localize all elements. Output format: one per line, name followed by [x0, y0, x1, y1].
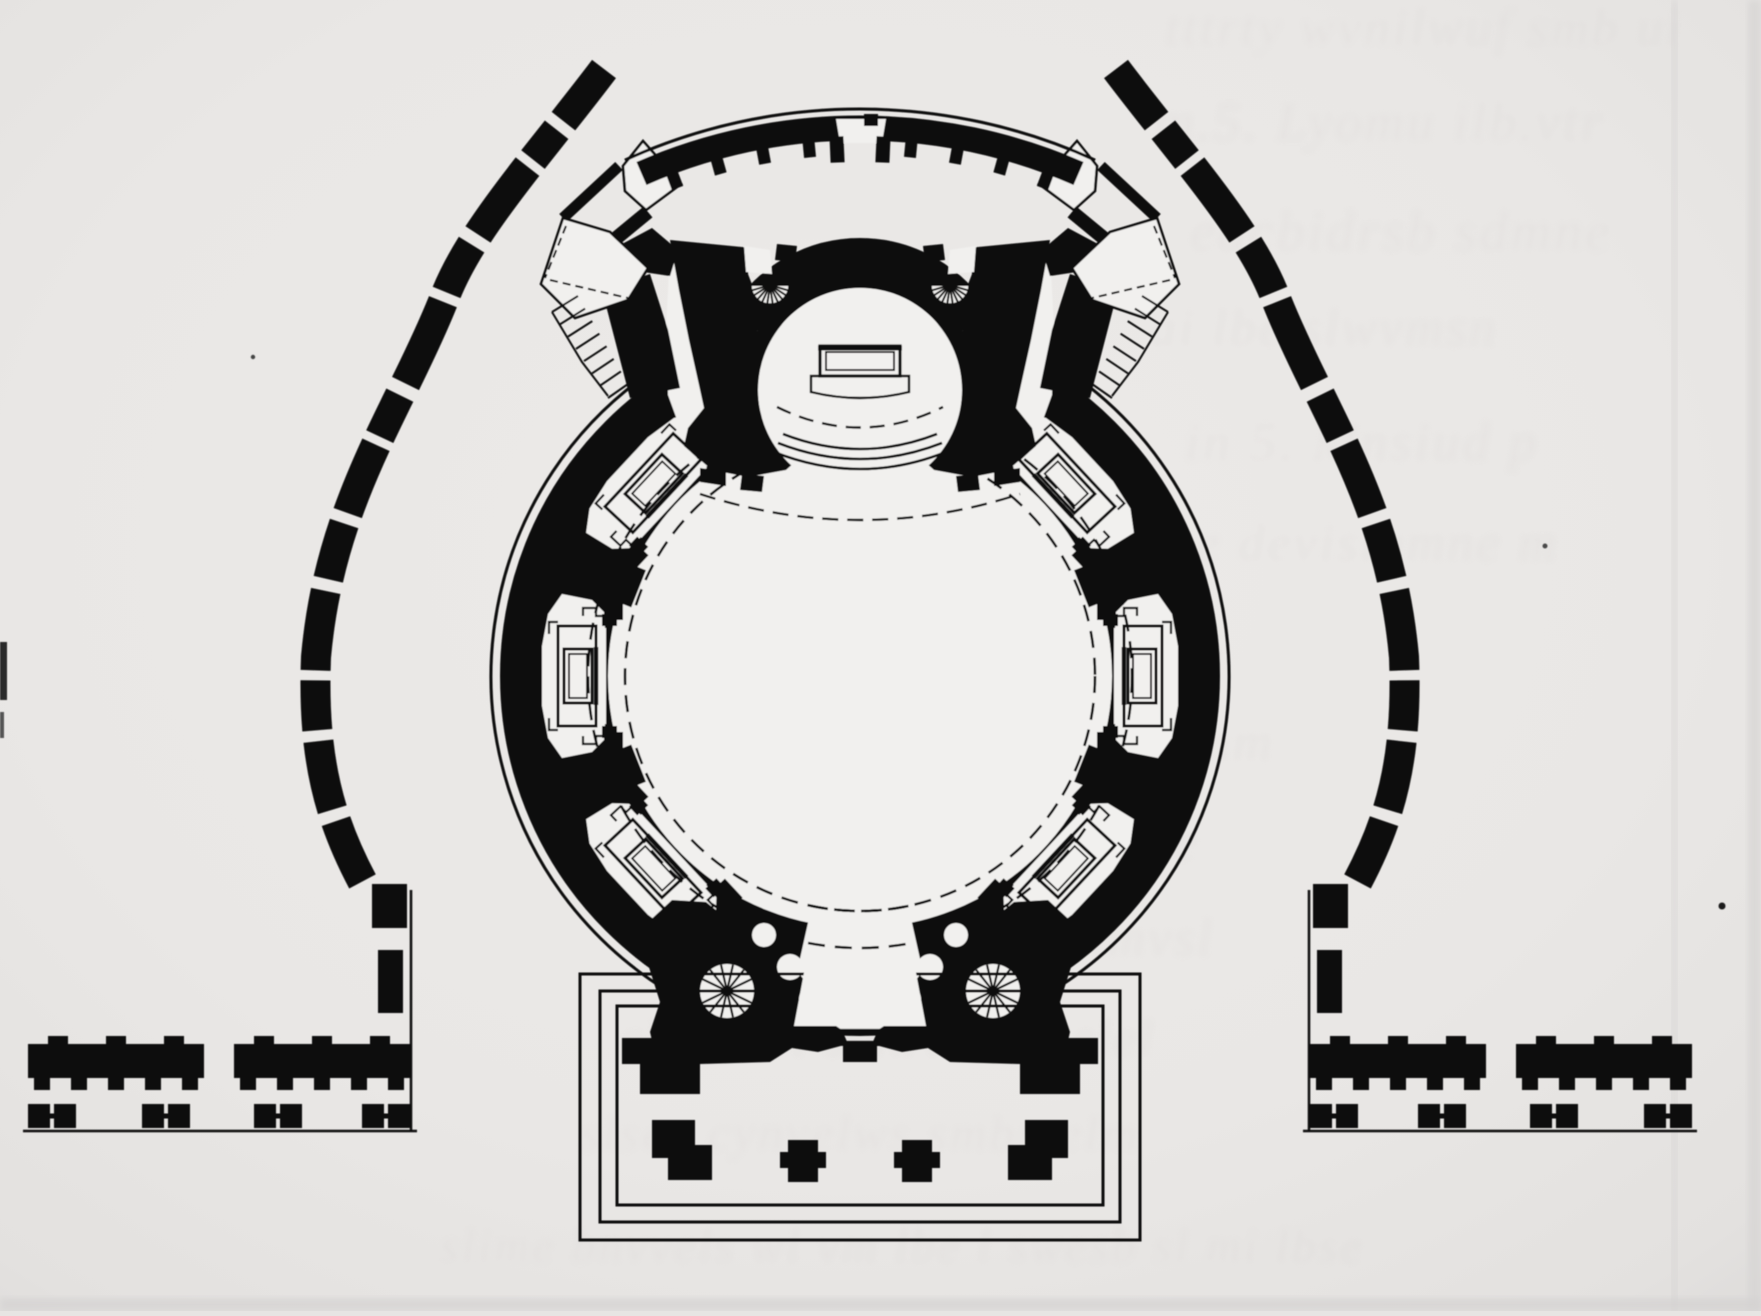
svg-text:m.5. Lyomu ilb.vtr: m.5. Lyomu ilb.vtr [1155, 92, 1605, 152]
svg-text:ai lbe slwvmsn: ai lbe slwvmsn [1150, 300, 1498, 357]
svg-text:tttrty wvnilwuf smb ui: tttrty wvnilwuf smb ui [1165, 0, 1683, 57]
